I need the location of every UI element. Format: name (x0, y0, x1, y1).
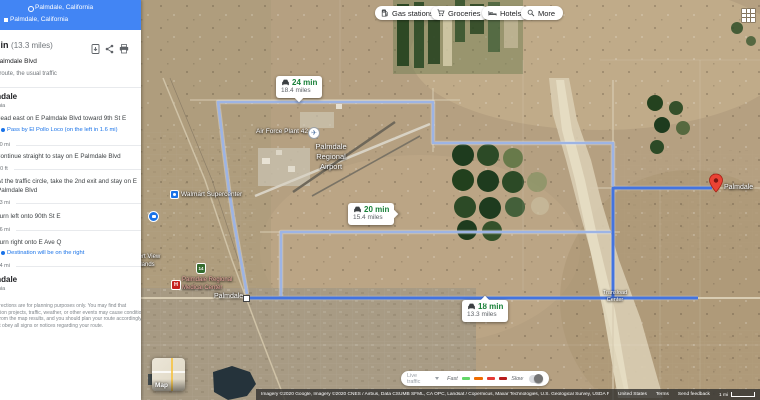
end-waypoint-name: Palmdale (0, 275, 17, 284)
route-badge-20min[interactable]: 20 min 15.4 miles (348, 203, 394, 225)
end-waypoint-region: California (0, 286, 5, 292)
attribution-bar: Imagery ©2020 Google, Imagery ©2020 CNES… (256, 389, 760, 400)
directions-header: Palmdale, California Palmdale, Californi… (0, 0, 141, 30)
start-marker[interactable] (243, 295, 250, 302)
car-icon (467, 303, 476, 310)
start-waypoint-region: California (0, 103, 5, 109)
route-duration: 18 min (13.3 miles) (0, 40, 53, 50)
apps-grid-icon[interactable] (741, 8, 756, 23)
traffic-seg-red (487, 377, 495, 380)
map-toggle-label: Map (155, 382, 168, 389)
step-5-note[interactable]: Destination will be on the right (1, 250, 84, 256)
blue-dot-icon (1, 128, 5, 132)
destination-field[interactable]: Palmdale, California (10, 16, 68, 23)
step-4[interactable]: Turn left onto 90th St E (0, 213, 61, 220)
step-5-distance: 1.4 mi (0, 263, 10, 269)
terms-link[interactable]: Terms (656, 392, 669, 397)
step-2[interactable]: Continue straight to stay on E Palmdale … (0, 153, 121, 160)
step-2-distance: 400 ft (0, 166, 8, 172)
traffic-slow-label: Slow (511, 376, 523, 382)
route-badge-18min[interactable]: 18 min 13.3 miles (462, 300, 508, 322)
map-type-toggle[interactable]: Map (152, 358, 185, 391)
route-distance: (13.3 miles) (11, 41, 53, 50)
traffic-seg-darkred (499, 377, 507, 380)
car-icon (281, 79, 290, 86)
car-icon (353, 206, 362, 213)
imagery-attribution: Imagery ©2020 Google, Imagery ©2020 CNES… (261, 392, 609, 397)
destination-square-icon (4, 18, 8, 22)
scale-label: 1 mi (719, 393, 728, 398)
blue-dot-icon (1, 251, 5, 255)
traffic-seg-orange (474, 377, 482, 380)
hospital-icon[interactable]: H (171, 280, 181, 290)
bus-station-icon[interactable] (148, 211, 159, 222)
print-icon[interactable] (119, 41, 129, 59)
route-badge-24min[interactable]: 24 min 18.4 miles (276, 76, 322, 98)
traffic-note: Fastest route, the usual traffic (0, 71, 57, 77)
scale-control[interactable]: 1 mi (719, 392, 755, 398)
step-3[interactable]: At the traffic circle, take the 2nd exit… (0, 177, 141, 195)
scale-bar (731, 392, 755, 397)
disclaimer-text: These directions are for planning purpos… (0, 303, 141, 329)
route-via: via E Palmdale Blvd (0, 58, 37, 65)
step-1[interactable]: Head east on E Palmdale Blvd toward 9th … (0, 115, 126, 122)
step-1-distance: 2.0 mi (0, 142, 10, 148)
walmart-icon[interactable] (170, 190, 179, 199)
share-icon[interactable] (105, 41, 114, 59)
directions-panel: Palmdale, California Palmdale, Californi… (0, 0, 141, 400)
send-to-phone-icon[interactable] (91, 41, 100, 59)
gas-pump-icon (381, 9, 389, 17)
cart-icon (437, 9, 445, 17)
step-4-distance: 2.6 mi (0, 227, 10, 233)
start-waypoint-name: Palmdale (0, 92, 17, 101)
more-button[interactable]: More (521, 6, 563, 20)
origin-field[interactable]: Palmdale, California (35, 4, 93, 11)
step-1-note[interactable]: Pass by El Pollo Loco (on the left in 1.… (1, 127, 118, 133)
origin-dot-icon (28, 6, 34, 12)
bed-icon (488, 9, 497, 17)
highway-14-shield: 14 (196, 263, 206, 274)
chevron-down-icon (435, 377, 439, 380)
traffic-legend: Live traffic Fast Slow (401, 371, 549, 386)
groceries-button[interactable]: Groceries (431, 6, 489, 20)
live-traffic-dropdown[interactable]: Live traffic (407, 373, 430, 385)
traffic-toggle[interactable] (529, 375, 543, 383)
country-link[interactable]: United States (618, 392, 647, 397)
step-5[interactable]: Turn right onto E Ave Q (0, 239, 61, 246)
search-icon (527, 9, 535, 17)
feedback-link[interactable]: Send feedback (678, 392, 710, 397)
airport-icon[interactable]: ✈ (308, 127, 320, 139)
traffic-fast-label: Fast (447, 376, 458, 382)
traffic-seg-green (462, 377, 470, 380)
step-3-distance: 7.3 mi (0, 200, 10, 206)
